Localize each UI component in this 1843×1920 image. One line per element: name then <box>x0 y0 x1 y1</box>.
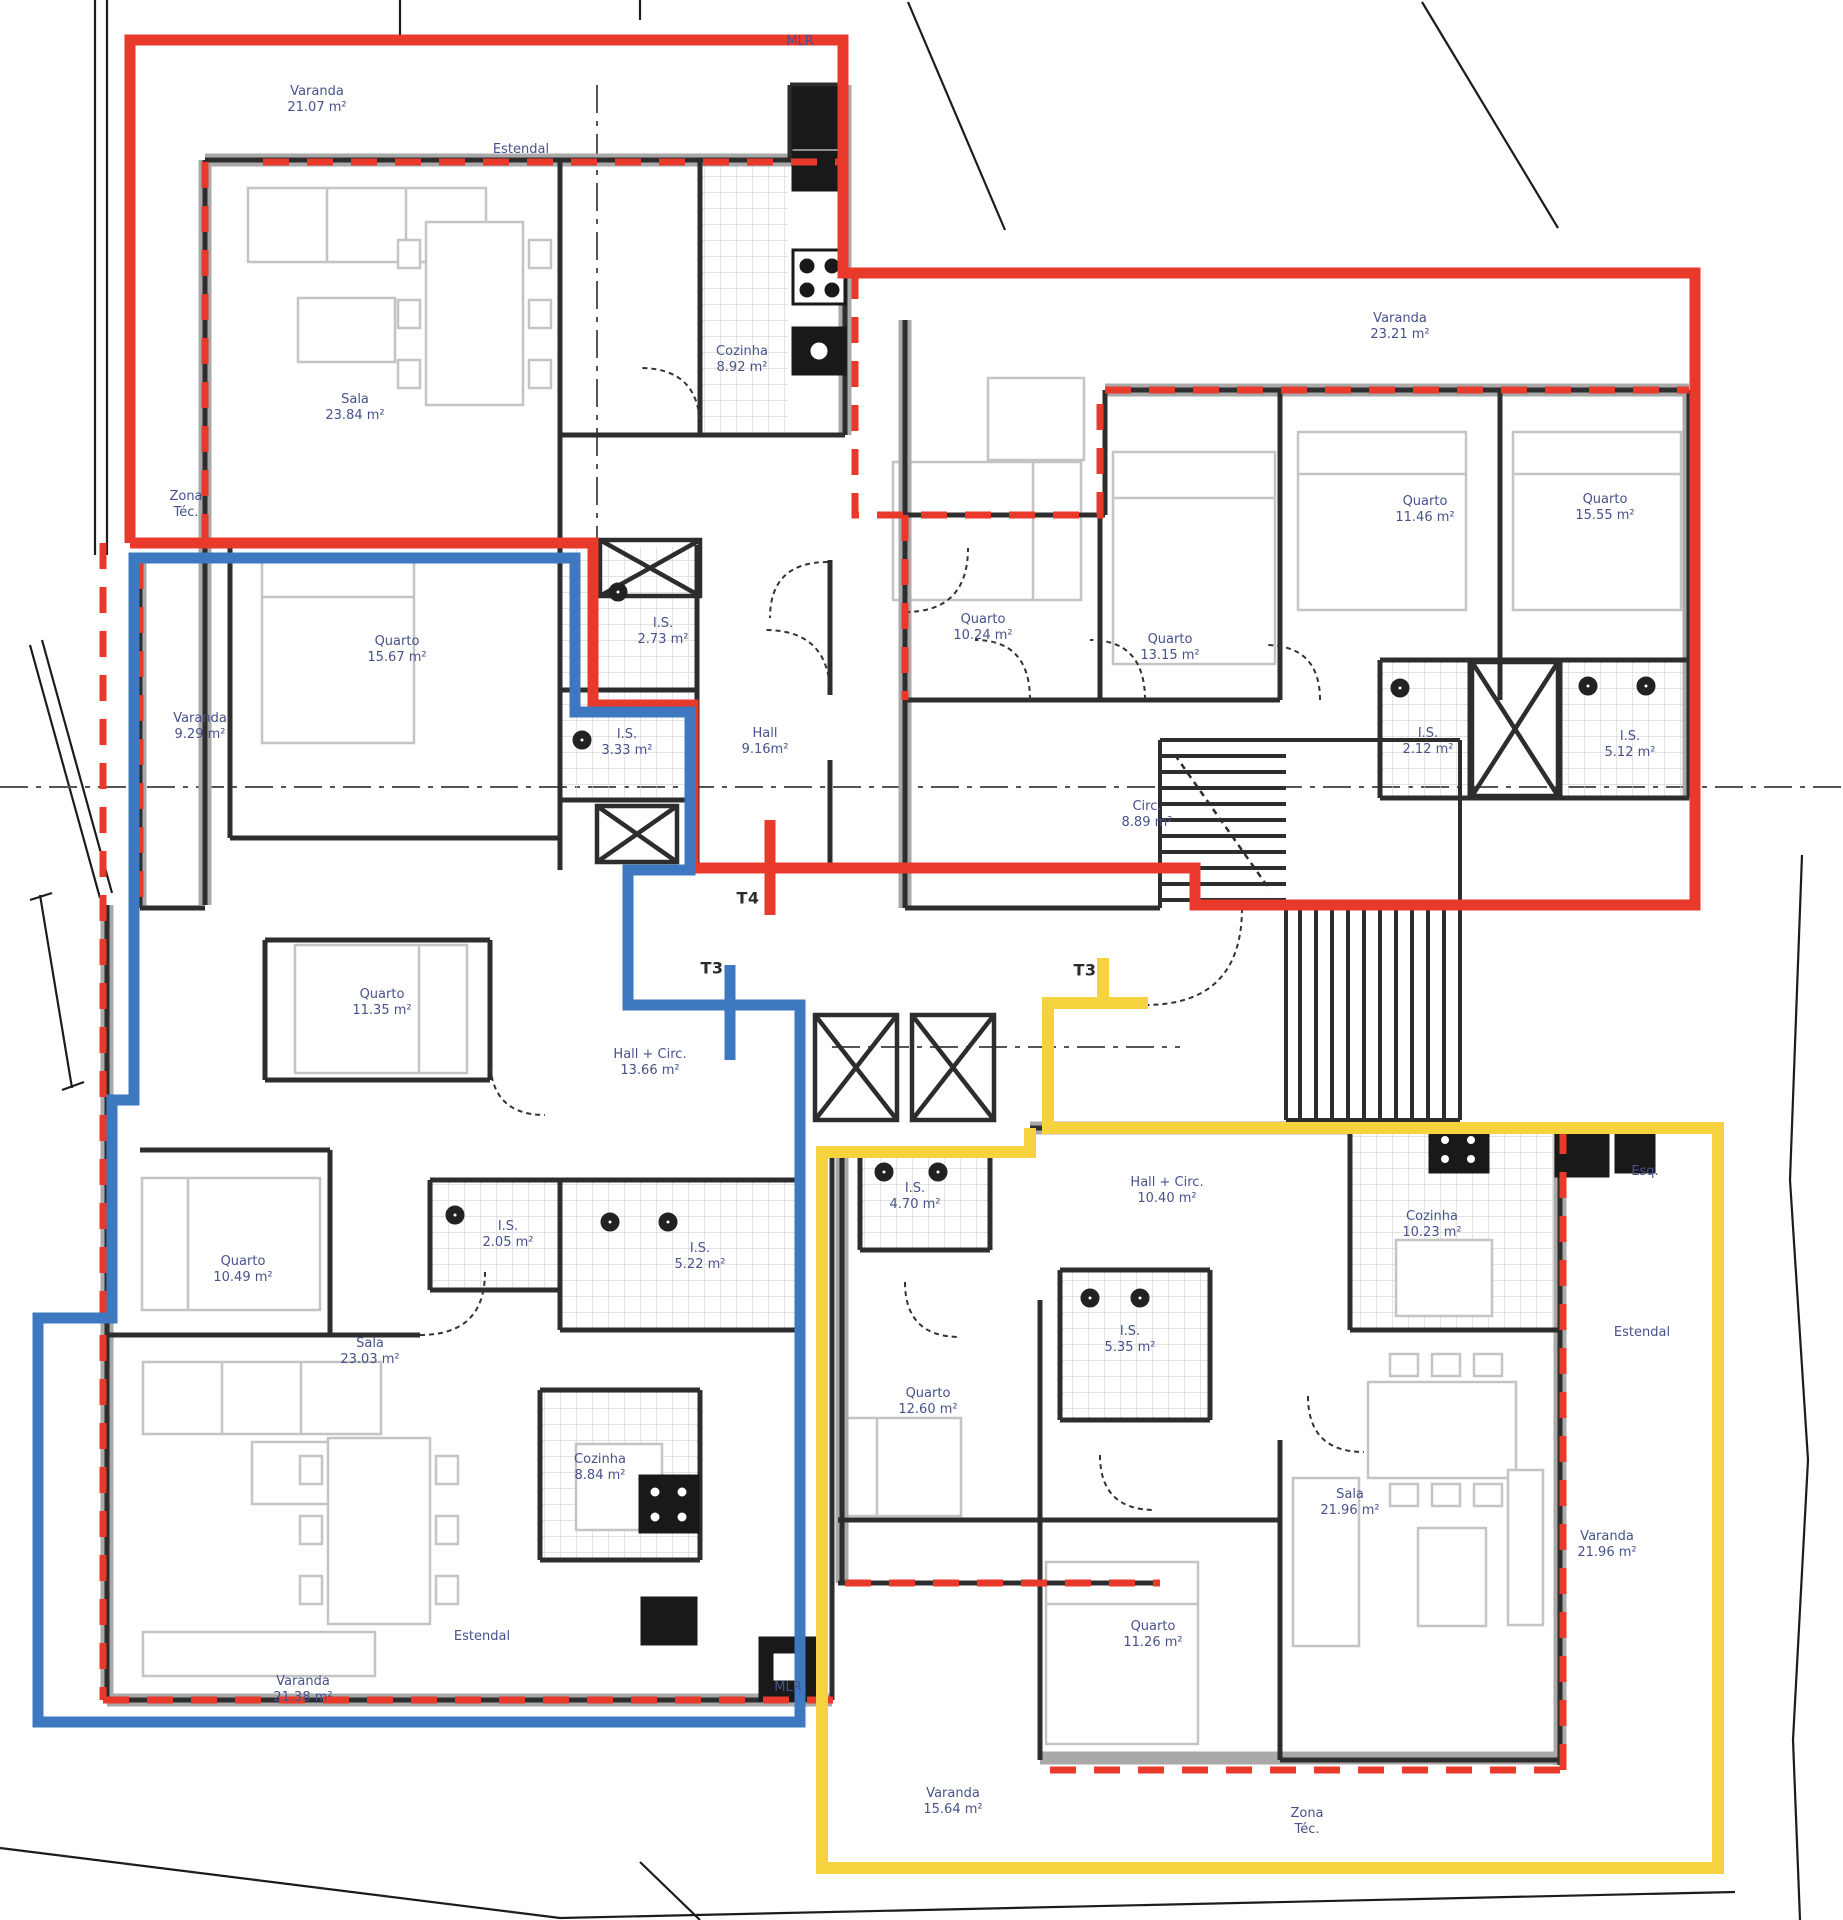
stove-icon <box>793 250 845 304</box>
stove-icon <box>1430 1128 1488 1172</box>
dining-table <box>426 222 523 405</box>
apartment-boundary-yellow <box>822 958 1718 1868</box>
bed <box>142 1178 320 1310</box>
sofa <box>1293 1478 1359 1646</box>
floor-plan-canvas: Varanda21.07 m²EstendalMLRSala23.84 m²Co… <box>0 0 1843 1920</box>
bed <box>295 945 467 1073</box>
bed <box>893 462 1081 600</box>
coffee-table <box>1418 1528 1486 1626</box>
elevator-right-icon <box>912 1015 994 1120</box>
elevator-left-icon <box>815 1015 897 1120</box>
bed <box>1298 432 1466 610</box>
bed <box>1113 452 1275 664</box>
wardrobe <box>988 378 1084 460</box>
floor-plan-drawing <box>0 0 1843 1920</box>
bed <box>843 1418 961 1516</box>
fridge-icon <box>793 88 845 148</box>
water-heater-icon <box>1616 1128 1654 1172</box>
bed <box>262 555 414 743</box>
kitchen-table <box>1396 1240 1492 1316</box>
oven-icon <box>642 1598 696 1644</box>
tv-unit <box>143 1632 375 1676</box>
coffee-table <box>298 298 395 362</box>
sofa <box>143 1362 381 1434</box>
tv-unit <box>1508 1470 1543 1625</box>
dining-table <box>328 1438 430 1624</box>
stove-icon <box>640 1476 698 1532</box>
dining-table <box>1368 1382 1516 1478</box>
bed <box>1046 1562 1198 1744</box>
bed <box>1513 432 1681 610</box>
